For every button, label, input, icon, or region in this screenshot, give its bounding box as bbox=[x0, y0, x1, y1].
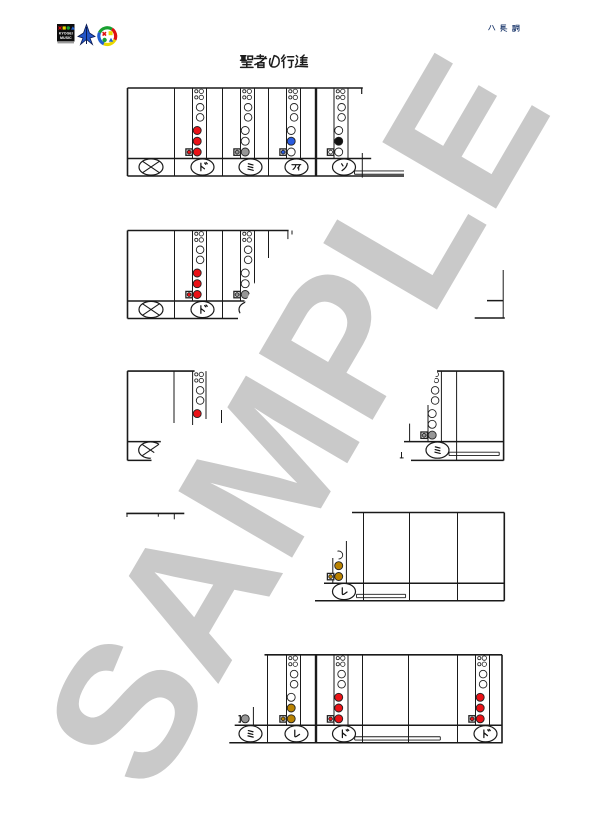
svg-text:MUSIC: MUSIC bbox=[60, 36, 72, 40]
svg-text:KYOGEI: KYOGEI bbox=[59, 32, 73, 36]
